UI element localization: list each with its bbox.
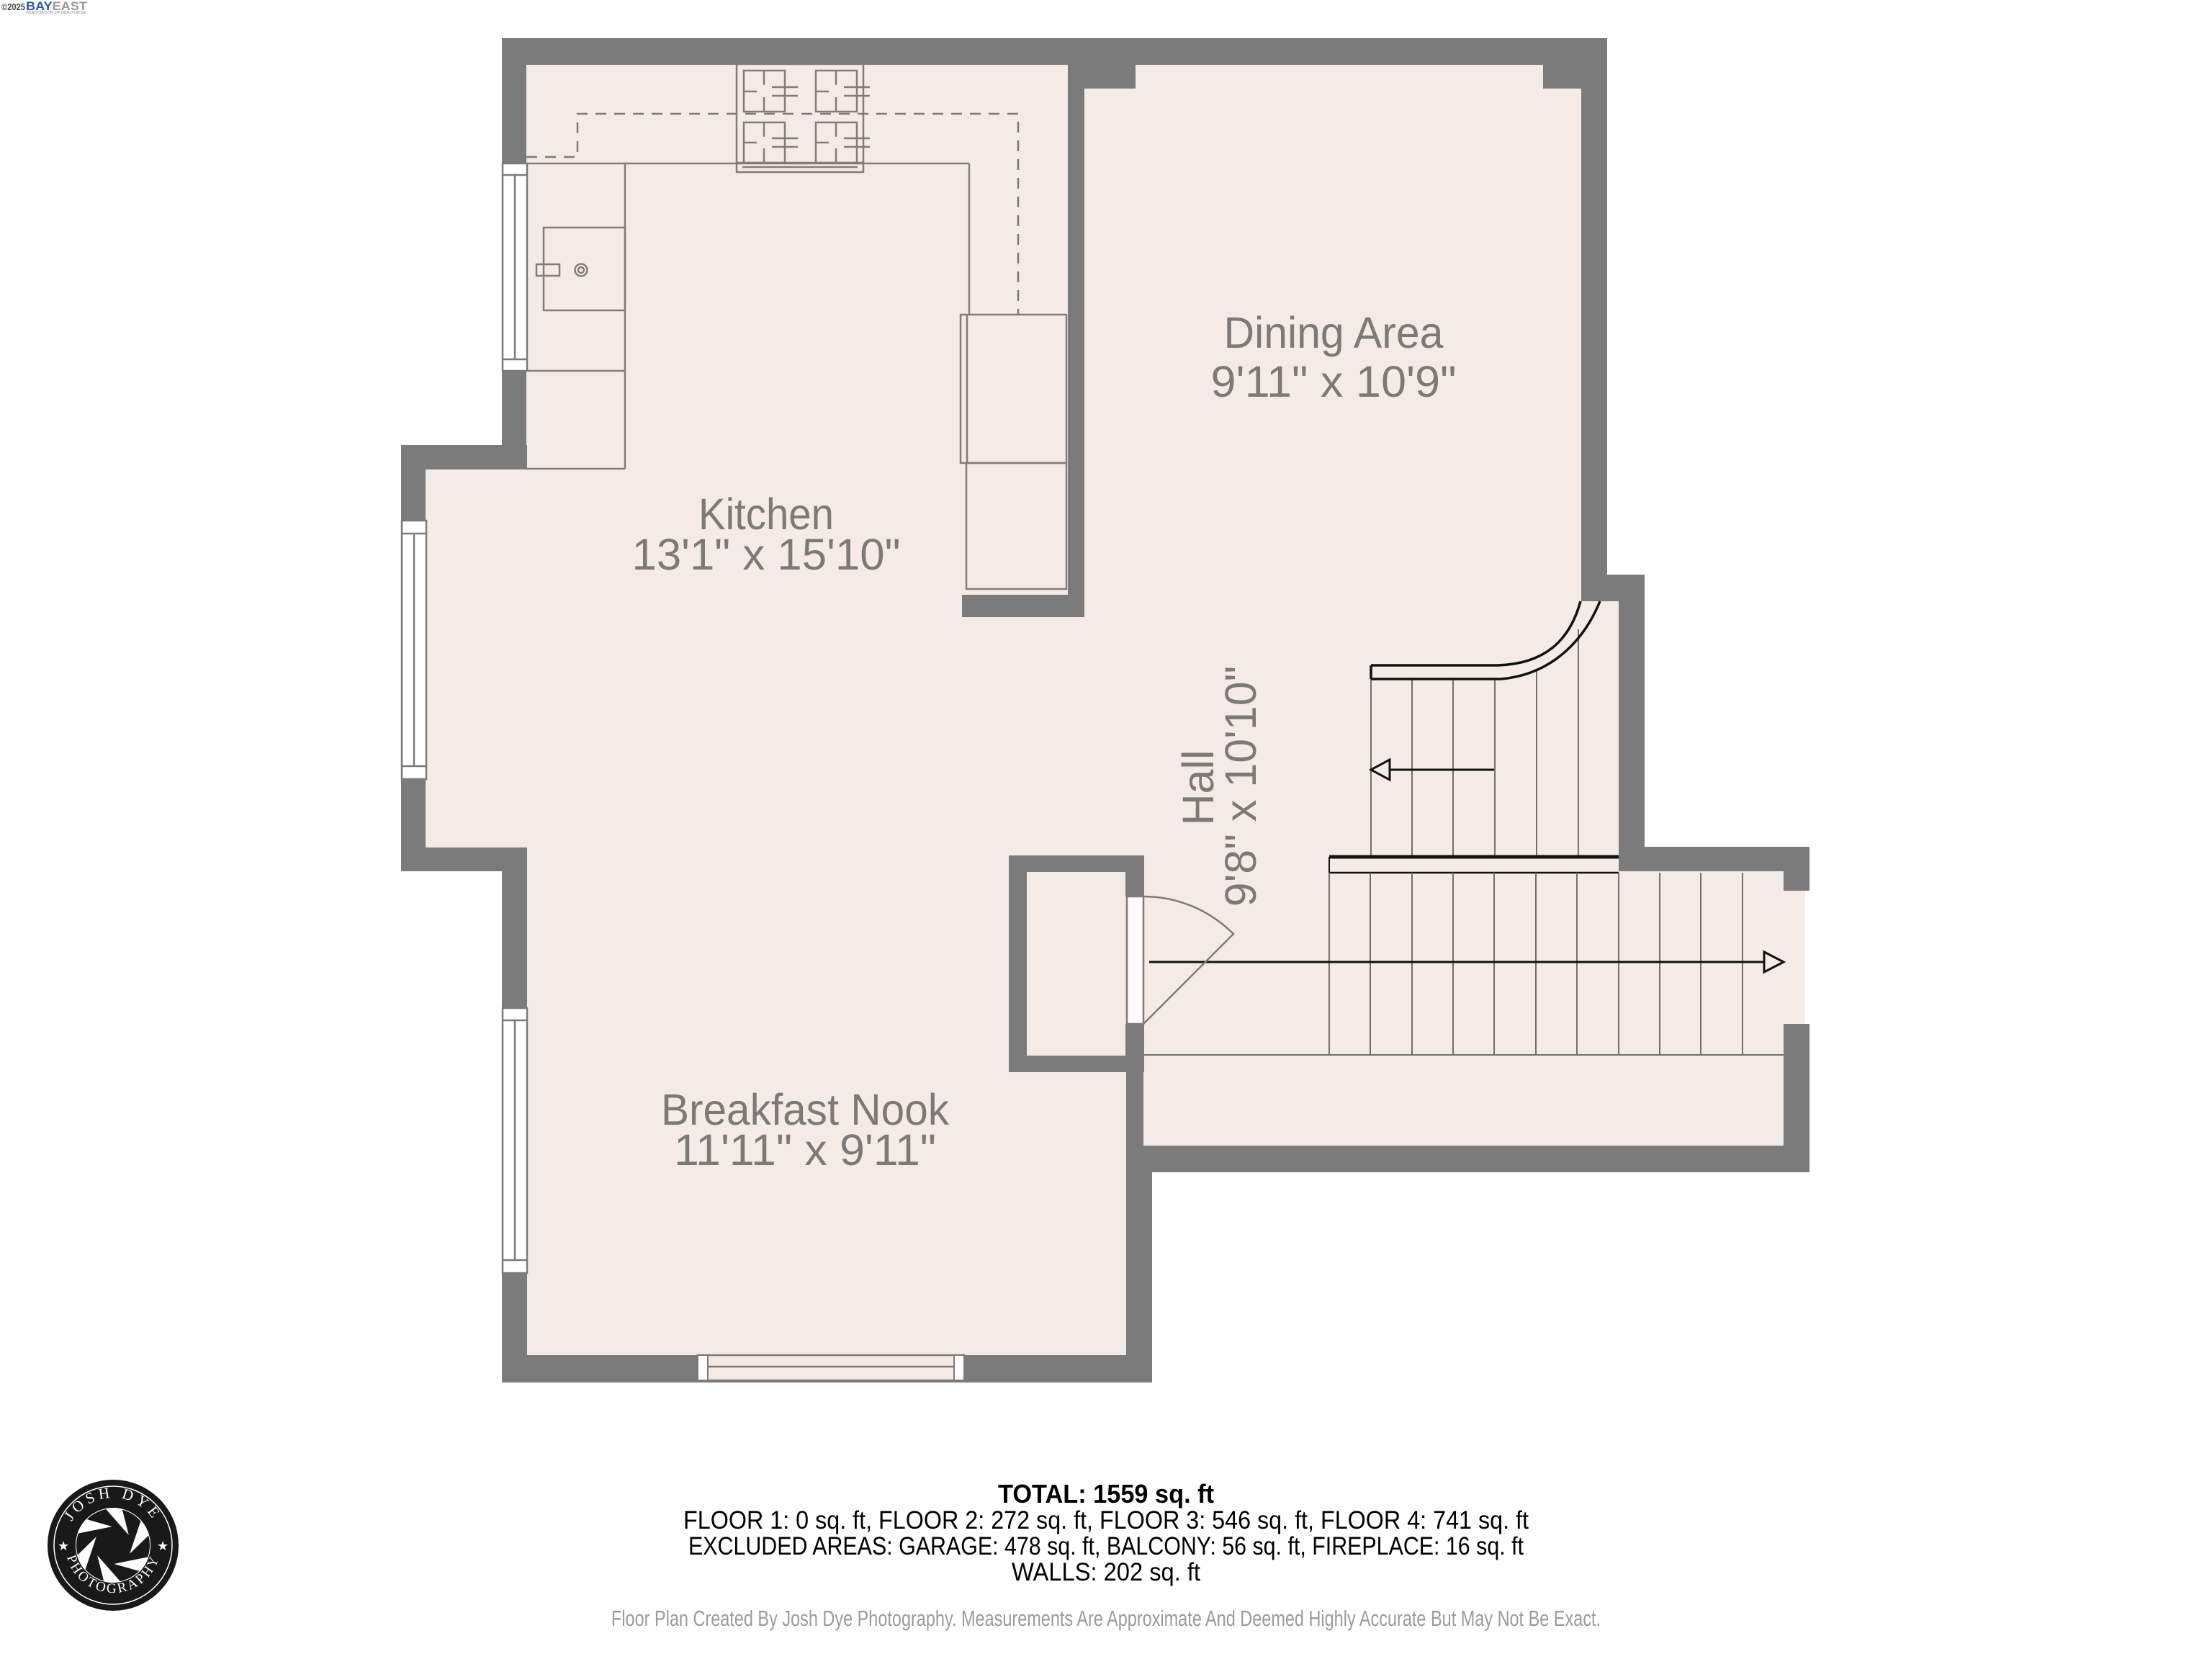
svg-text:TOTAL: 1559 sq. ft: TOTAL: 1559 sq. ft — [998, 1479, 1214, 1509]
svg-text:9'8" x 10'10": 9'8" x 10'10" — [1216, 666, 1265, 907]
svg-text:9'11" x 10'9": 9'11" x 10'9" — [1211, 357, 1457, 406]
svg-text:EXCLUDED AREAS: GARAGE: 478 sq: EXCLUDED AREAS: GARAGE: 478 sq. ft, BALC… — [688, 1532, 1524, 1560]
svg-text:11'11" x 9'11": 11'11" x 9'11" — [674, 1125, 936, 1174]
svg-text:Floor Plan Created By Josh Dye: Floor Plan Created By Josh Dye Photograp… — [611, 1606, 1601, 1631]
svg-text:Hall: Hall — [1174, 750, 1223, 825]
svg-text:ASSOCIATION OF REALTORS®: ASSOCIATION OF REALTORS® — [26, 10, 86, 15]
svg-text:WALLS: 202 sq. ft: WALLS: 202 sq. ft — [1012, 1558, 1200, 1586]
svg-text:★: ★ — [58, 1539, 69, 1553]
svg-text:★: ★ — [157, 1539, 168, 1553]
svg-text:©2025: ©2025 — [1, 1, 25, 12]
svg-text:FLOOR 1: 0 sq. ft, FLOOR 2: 27: FLOOR 1: 0 sq. ft, FLOOR 2: 272 sq. ft, … — [683, 1506, 1529, 1534]
svg-text:13'1" x 15'10": 13'1" x 15'10" — [632, 530, 901, 579]
svg-text:Dining Area: Dining Area — [1224, 308, 1444, 357]
